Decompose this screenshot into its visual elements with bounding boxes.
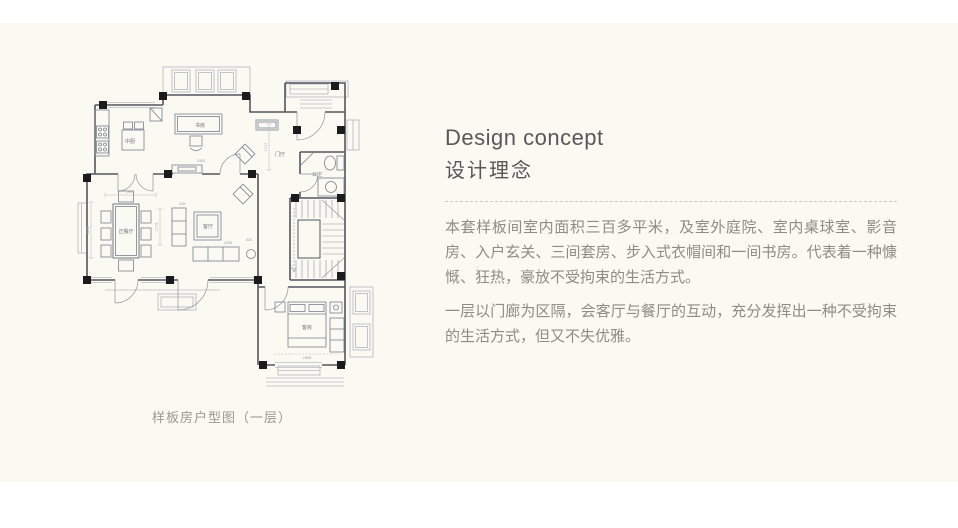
plan-walls bbox=[87, 83, 345, 365]
console-table-icon bbox=[256, 120, 278, 130]
room-label-living: 客厅 bbox=[203, 223, 213, 230]
toilet-icon bbox=[325, 156, 345, 170]
room-label-bath: 公卫 bbox=[312, 172, 322, 178]
dim-label: 1779 bbox=[155, 223, 159, 231]
sink-icon bbox=[318, 178, 344, 196]
room-label-guest: 客房 bbox=[302, 324, 312, 331]
stove-icon bbox=[97, 126, 109, 153]
room-labels: 中厨 书房 门厅 公卫 正餐厅 客厅 客房 bbox=[118, 122, 322, 331]
dim-label: 1552 bbox=[197, 159, 205, 163]
kitchen-table-icon bbox=[122, 122, 144, 150]
room-label-study: 书房 bbox=[195, 122, 205, 129]
content-panel: 中厨 书房 门厅 公卫 正餐厅 客厅 客房 1995 2206 1552 225… bbox=[0, 23, 958, 482]
sofa-icon bbox=[172, 208, 239, 261]
desk-chair-icon bbox=[190, 136, 202, 151]
side-table-icon bbox=[247, 250, 256, 259]
wardrobe-icon bbox=[330, 318, 344, 352]
room-label-foyer: 门厅 bbox=[275, 151, 285, 158]
floor-plan: 中厨 书房 门厅 公卫 正餐厅 客厅 客房 1995 2206 1552 225… bbox=[60, 62, 392, 398]
concept-title-en: Design concept bbox=[445, 125, 897, 151]
fridge-icon bbox=[150, 108, 162, 121]
tv-cabinet-icon bbox=[172, 165, 202, 173]
dim-label: 1717 bbox=[264, 143, 268, 151]
floorplan-figure: 中厨 书房 门厅 公卫 正餐厅 客厅 客房 1995 2206 1552 225… bbox=[60, 62, 392, 398]
design-concept-block: Design concept 设计理念 本套样板间室内面积三百多平米，及室外庭院… bbox=[445, 125, 897, 349]
armchair-icon bbox=[233, 184, 253, 204]
floorplan-caption: 样板房户型图（一层） bbox=[152, 407, 292, 426]
plan-thin-details bbox=[78, 67, 373, 386]
dashed-divider bbox=[445, 201, 897, 202]
dim-label: 415 bbox=[179, 202, 185, 206]
dim-label: 1995 bbox=[126, 190, 134, 194]
room-label-kitchen: 中厨 bbox=[125, 138, 135, 145]
concept-paragraph-1: 本套样板间室内面积三百多平米，及室外庭院、室内桌球室、影音房、入户玄关、三间套房… bbox=[445, 215, 897, 290]
dim-label: 2255 bbox=[224, 241, 232, 245]
nightstand-icon bbox=[275, 302, 342, 313]
kitchen-counter-icon bbox=[95, 110, 109, 156]
dim-label: 2206 bbox=[86, 226, 90, 234]
concept-paragraph-2: 一层以门廊为区隔，会客厅与餐厅的互动，充分发挥出一种不受拘束的生活方式，但又不失… bbox=[445, 299, 897, 349]
stairs bbox=[292, 200, 345, 278]
dim-label: 520 bbox=[246, 238, 252, 242]
concept-title-zh: 设计理念 bbox=[445, 158, 897, 184]
page: 中厨 书房 门厅 公卫 正餐厅 客厅 客房 1995 2206 1552 225… bbox=[0, 0, 958, 528]
dimension-labels: 1995 2206 1552 2255 1779 1717 2065 415 5… bbox=[86, 143, 311, 360]
dimension-lines bbox=[89, 124, 341, 354]
room-label-dining: 正餐厅 bbox=[118, 228, 133, 235]
dim-label: 2065 bbox=[303, 356, 311, 360]
shower-corner bbox=[300, 152, 314, 166]
